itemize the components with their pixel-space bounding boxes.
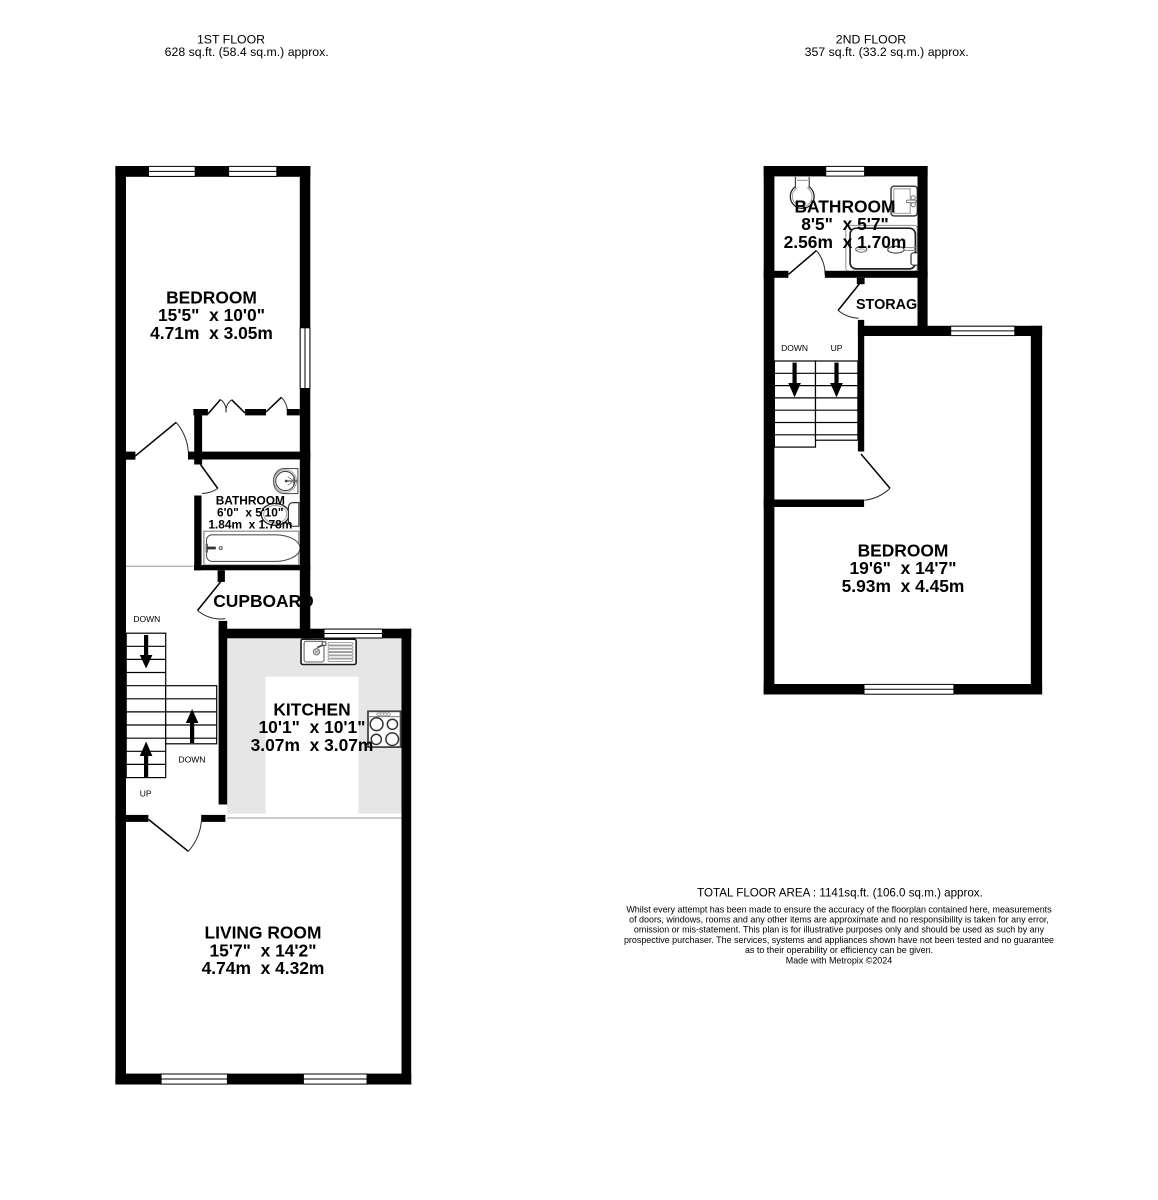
svg-text:5.93m x 4.45m: 5.93m x 4.45m	[842, 576, 965, 596]
svg-text:prospective purchaser. The ser: prospective purchaser. The services, sys…	[624, 935, 1054, 945]
svg-text:3.07m x 3.07m: 3.07m x 3.07m	[251, 735, 374, 755]
svg-text:UP: UP	[140, 789, 152, 799]
svg-text:Made with Metropix ©2024: Made with Metropix ©2024	[786, 955, 892, 965]
svg-text:STORAG: STORAG	[856, 297, 917, 313]
svg-text:TOTAL FLOOR AREA : 1141sq.ft.: TOTAL FLOOR AREA : 1141sq.ft. (106.0 sq.…	[697, 887, 983, 900]
svg-text:UP: UP	[831, 343, 843, 353]
svg-text:Whilst every attempt has been: Whilst every attempt has been made to en…	[626, 904, 1052, 914]
svg-text:4.74m x 4.32m: 4.74m x 4.32m	[202, 958, 325, 978]
svg-text:1.84m x 1.78m: 1.84m x 1.78m	[208, 517, 292, 531]
svg-text:4.71m x 3.05m: 4.71m x 3.05m	[150, 323, 273, 343]
svg-text:DOWN: DOWN	[133, 614, 160, 624]
svg-text:omission or mis-statement. Thi: omission or mis-statement. This plan is …	[634, 925, 1045, 935]
svg-text:2.56m x 1.70m: 2.56m x 1.70m	[784, 232, 907, 252]
svg-text:DOWN: DOWN	[179, 755, 206, 765]
svg-text:as to their operability or eff: as to their operability or efficiency ca…	[745, 945, 933, 955]
svg-text:of doors, windows, rooms and a: of doors, windows, rooms and any other i…	[629, 915, 1049, 925]
svg-text:628 sq.ft. (58.4 sq.m.) approx: 628 sq.ft. (58.4 sq.m.) approx.	[165, 45, 329, 59]
svg-text:CUPBOARD: CUPBOARD	[213, 591, 313, 611]
svg-text:DOWN: DOWN	[781, 343, 808, 353]
svg-text:357 sq.ft. (33.2 sq.m.) approx: 357 sq.ft. (33.2 sq.m.) approx.	[805, 45, 969, 59]
